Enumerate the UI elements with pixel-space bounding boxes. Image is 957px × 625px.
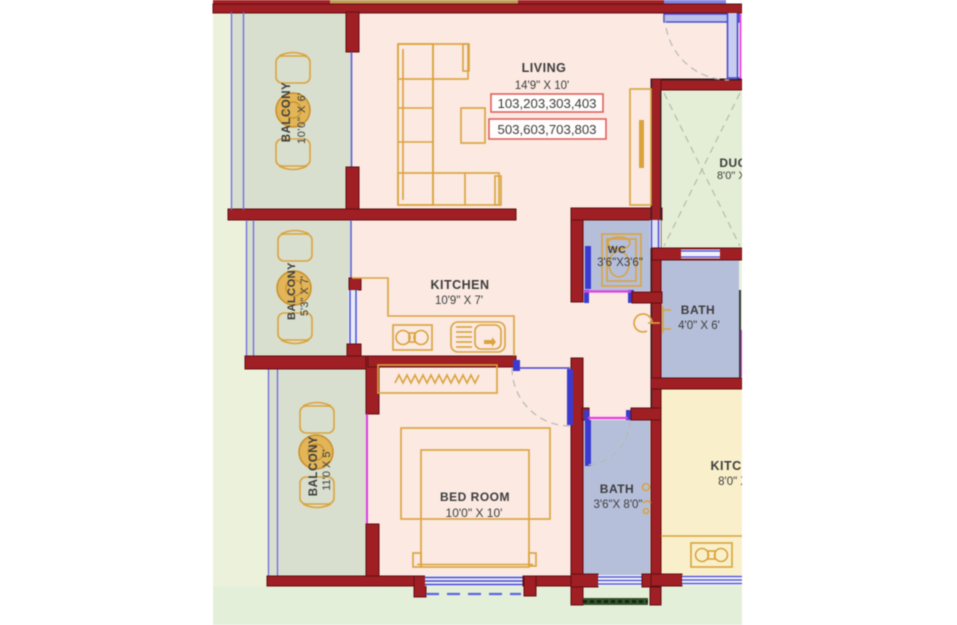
svg-text:KITCHEN: KITCHEN — [430, 278, 489, 292]
svg-text:LIVING: LIVING — [522, 61, 567, 75]
svg-text:5'3" X 7': 5'3" X 7' — [299, 276, 311, 316]
svg-text:103,203,303,403: 103,203,303,403 — [497, 96, 596, 111]
svg-text:3'6"X 8'0": 3'6"X 8'0" — [593, 499, 642, 511]
svg-text:10'0" X 10': 10'0" X 10' — [446, 506, 503, 520]
svg-text:14'9" X 10': 14'9" X 10' — [515, 80, 570, 92]
svg-text:BALCONY: BALCONY — [286, 262, 298, 320]
svg-text:WC: WC — [608, 244, 627, 256]
svg-text:10'9" X 7': 10'9" X 7' — [435, 295, 483, 307]
svg-text:503,603,703,803: 503,603,703,803 — [497, 122, 596, 137]
svg-text:11'0 X 5': 11'0 X 5' — [321, 449, 333, 490]
svg-text:BALCONY: BALCONY — [308, 436, 320, 496]
svg-text:BATH: BATH — [681, 303, 715, 317]
svg-text:BALCONY: BALCONY — [281, 82, 293, 142]
svg-text:3'6"X3'6": 3'6"X3'6" — [597, 257, 643, 269]
svg-text:BATH: BATH — [600, 482, 634, 496]
svg-text:BED ROOM: BED ROOM — [440, 490, 510, 504]
svg-text:10'0" X 6': 10'0" X 6' — [296, 92, 308, 144]
svg-text:4'0" X 6': 4'0" X 6' — [678, 320, 720, 332]
